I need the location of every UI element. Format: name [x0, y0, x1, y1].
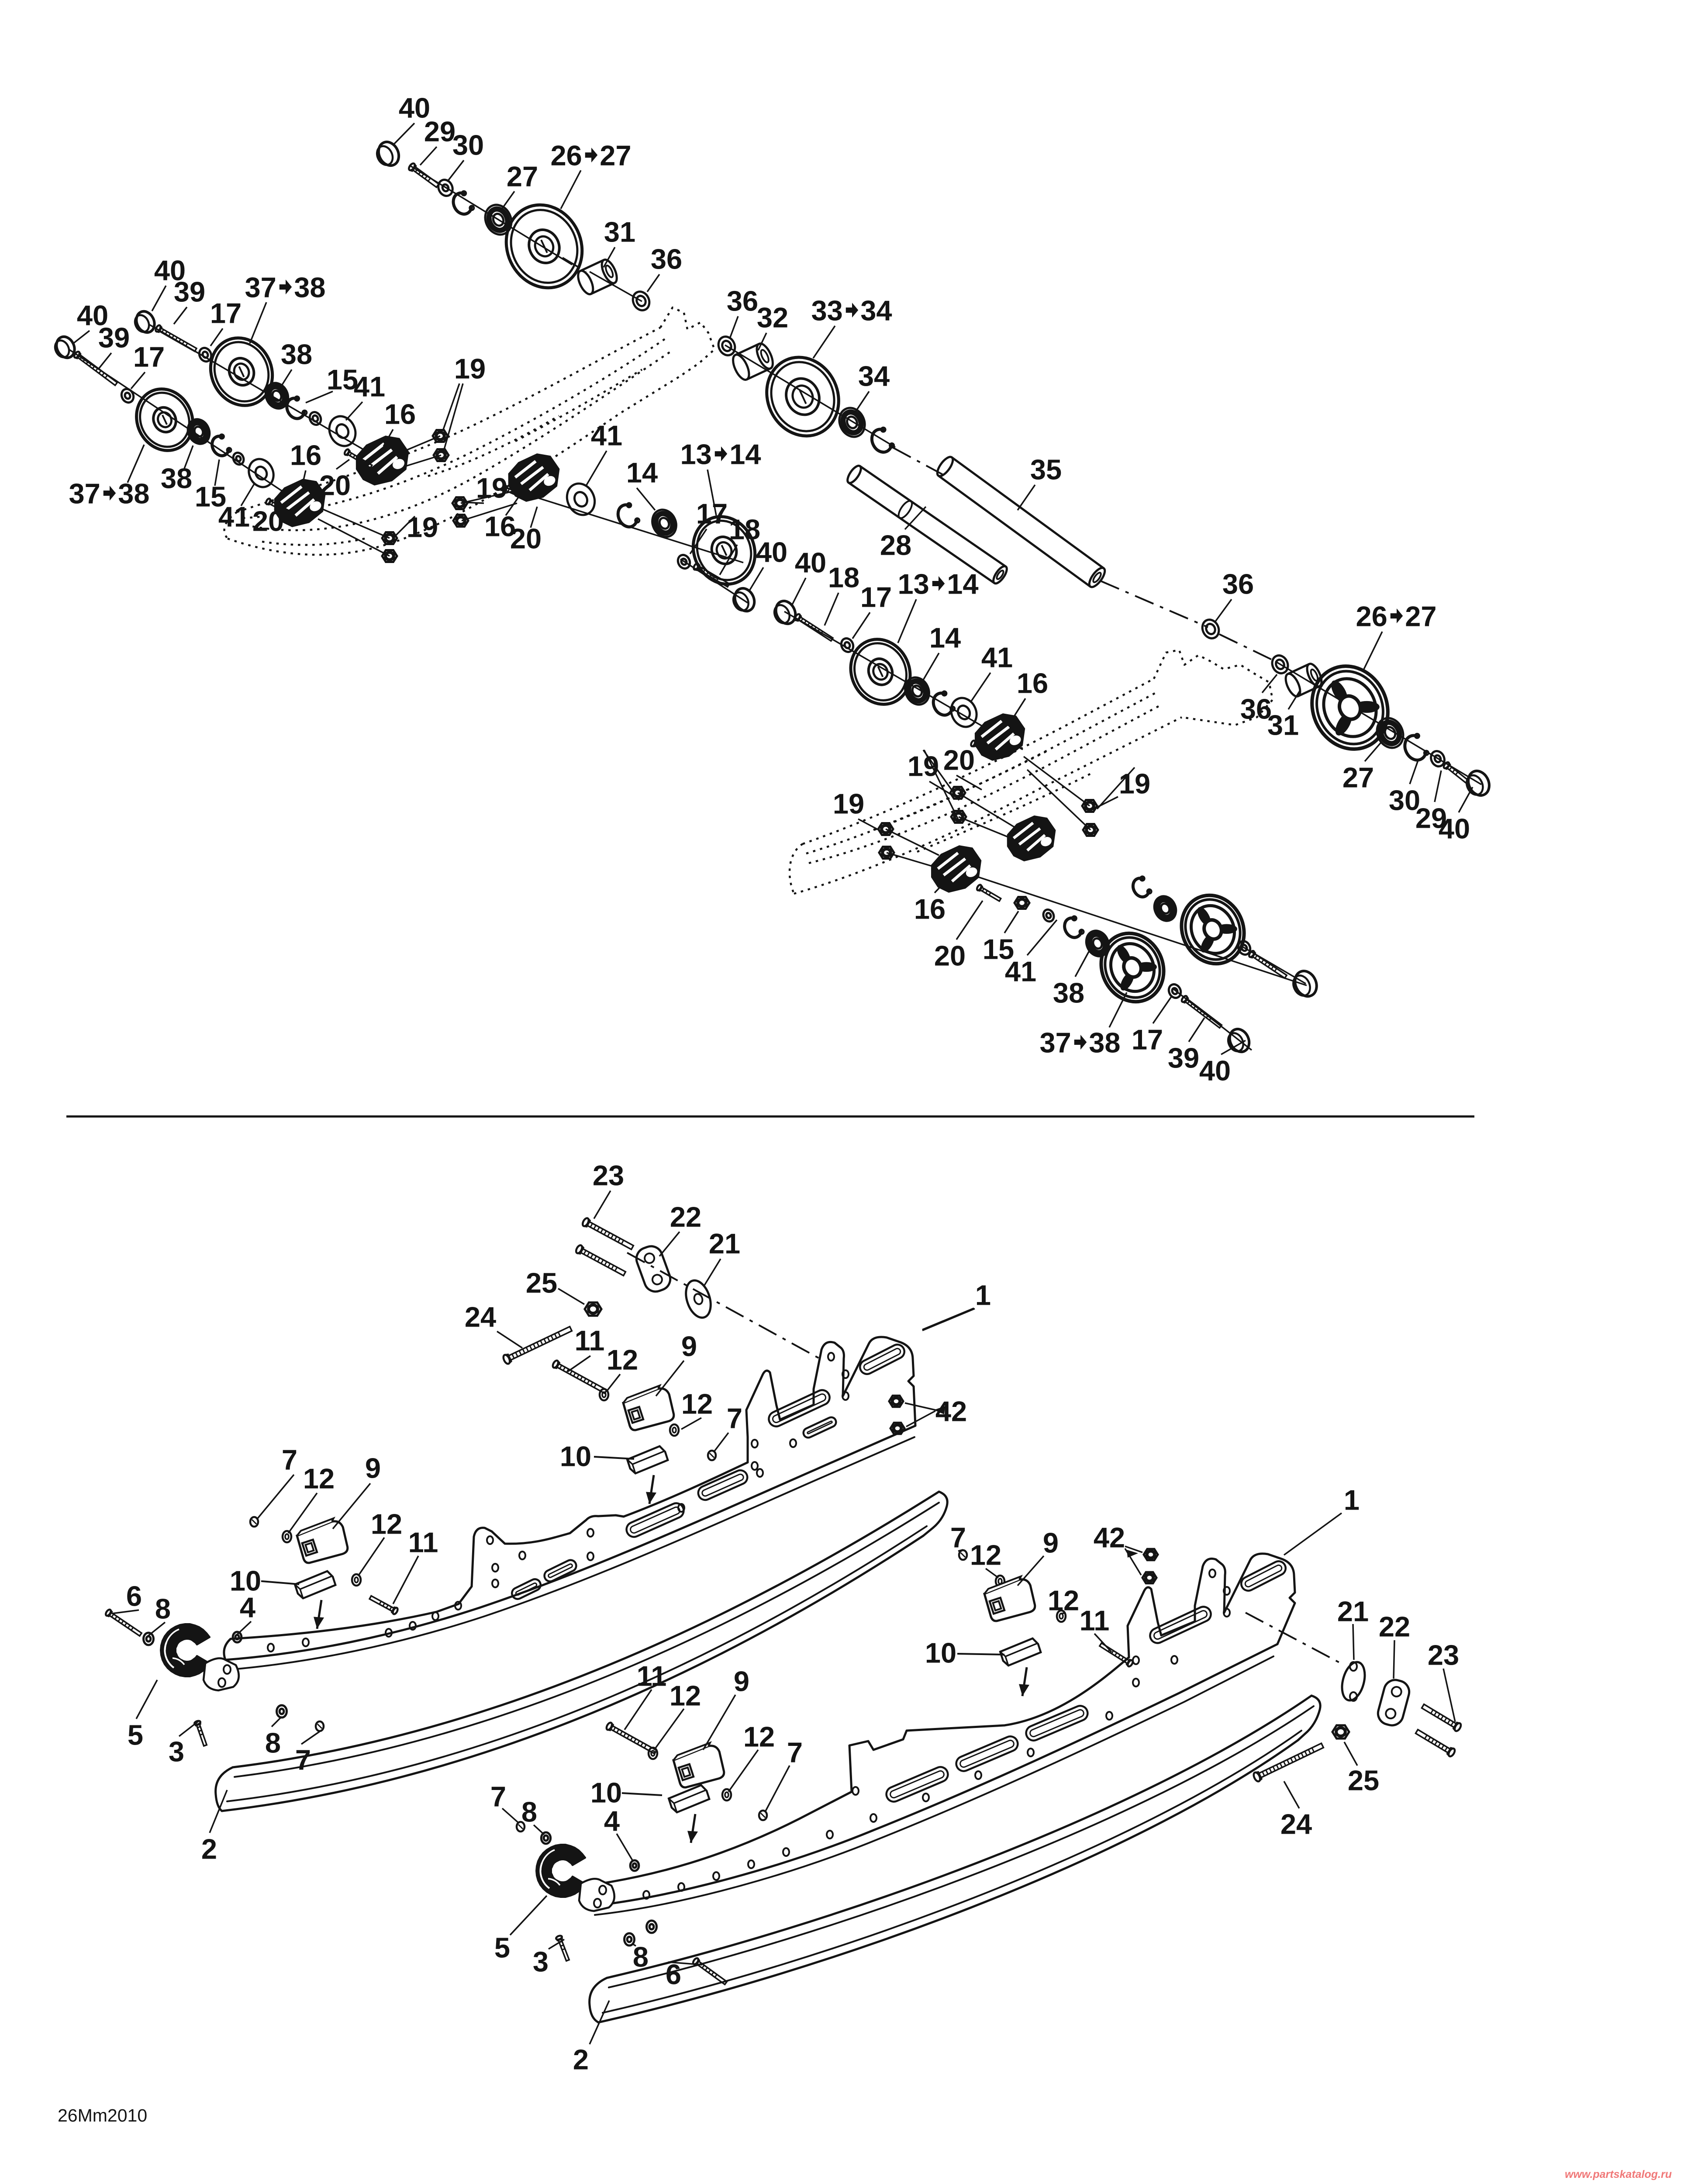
- svg-text:38: 38: [1089, 1026, 1120, 1058]
- svg-text:39: 39: [1168, 1042, 1199, 1074]
- svg-text:35: 35: [1030, 453, 1062, 485]
- svg-text:16: 16: [290, 439, 321, 471]
- svg-text:41: 41: [354, 370, 385, 402]
- svg-text:26: 26: [550, 139, 582, 171]
- svg-text:25: 25: [1348, 1764, 1379, 1796]
- svg-text:9: 9: [681, 1330, 697, 1362]
- svg-text:12: 12: [607, 1344, 638, 1375]
- svg-text:39: 39: [174, 276, 205, 308]
- svg-text:28: 28: [880, 529, 911, 561]
- svg-text:14: 14: [947, 568, 978, 600]
- svg-text:40: 40: [756, 536, 787, 568]
- svg-text:29: 29: [424, 115, 456, 147]
- svg-text:20: 20: [943, 744, 975, 776]
- svg-text:32: 32: [757, 301, 788, 333]
- svg-text:31: 31: [604, 216, 635, 248]
- svg-text:16: 16: [914, 893, 946, 925]
- svg-text:17: 17: [210, 297, 242, 329]
- svg-text:7: 7: [950, 1521, 966, 1553]
- svg-text:33: 33: [811, 294, 842, 326]
- svg-text:11: 11: [637, 1660, 667, 1692]
- svg-text:19: 19: [407, 511, 438, 543]
- svg-text:20: 20: [510, 522, 542, 554]
- svg-text:11: 11: [1080, 1604, 1110, 1636]
- svg-text:36: 36: [1222, 568, 1254, 600]
- svg-text:13: 13: [897, 568, 929, 600]
- svg-text:17: 17: [696, 498, 728, 529]
- svg-text:12: 12: [303, 1462, 335, 1494]
- svg-text:42: 42: [1094, 1521, 1125, 1553]
- svg-text:21: 21: [1337, 1595, 1369, 1627]
- svg-text:2: 2: [201, 1833, 217, 1865]
- svg-text:12: 12: [371, 1508, 402, 1540]
- svg-text:40: 40: [795, 546, 826, 578]
- svg-text:17: 17: [133, 341, 165, 373]
- svg-text:11: 11: [575, 1324, 605, 1356]
- svg-text:31: 31: [1267, 709, 1299, 741]
- svg-text:36: 36: [651, 243, 682, 275]
- svg-text:41: 41: [591, 419, 622, 451]
- svg-text:27: 27: [600, 139, 631, 171]
- svg-text:26: 26: [1356, 600, 1387, 632]
- svg-text:2: 2: [573, 2043, 589, 2075]
- svg-text:38: 38: [294, 271, 325, 303]
- svg-text:37: 37: [245, 271, 276, 303]
- svg-text:17: 17: [860, 581, 892, 613]
- svg-text:22: 22: [1379, 1610, 1410, 1642]
- svg-text:14: 14: [929, 622, 961, 653]
- svg-text:41: 41: [981, 641, 1013, 673]
- svg-text:17: 17: [1132, 1023, 1163, 1055]
- svg-text:13: 13: [680, 438, 711, 470]
- svg-text:7: 7: [787, 1736, 803, 1768]
- svg-text:9: 9: [734, 1665, 749, 1697]
- svg-text:38: 38: [1053, 977, 1084, 1009]
- svg-text:24: 24: [465, 1301, 496, 1333]
- svg-text:5: 5: [128, 1719, 143, 1751]
- svg-text:19: 19: [454, 352, 486, 384]
- svg-text:27: 27: [507, 160, 538, 192]
- svg-text:41: 41: [218, 501, 250, 532]
- svg-text:12: 12: [743, 1721, 775, 1752]
- svg-text:6: 6: [126, 1580, 142, 1612]
- svg-text:8: 8: [521, 1796, 537, 1828]
- svg-text:4: 4: [240, 1591, 255, 1623]
- svg-text:34: 34: [860, 294, 892, 326]
- svg-text:34: 34: [858, 360, 890, 392]
- svg-text:19: 19: [833, 788, 864, 819]
- svg-text:19: 19: [476, 472, 507, 504]
- svg-text:27: 27: [1405, 600, 1436, 632]
- svg-text:42: 42: [935, 1395, 967, 1427]
- svg-text:1: 1: [1344, 1484, 1360, 1516]
- svg-text:12: 12: [1048, 1584, 1079, 1616]
- svg-text:25: 25: [526, 1267, 557, 1299]
- svg-text:39: 39: [98, 321, 130, 353]
- svg-text:24: 24: [1280, 1808, 1312, 1840]
- svg-text:30: 30: [452, 129, 484, 161]
- svg-text:20: 20: [934, 940, 966, 971]
- svg-text:10: 10: [925, 1637, 956, 1669]
- svg-text:12: 12: [970, 1539, 1001, 1571]
- svg-text:18: 18: [828, 561, 859, 593]
- svg-text:10: 10: [560, 1440, 591, 1472]
- svg-text:37: 37: [69, 477, 100, 509]
- svg-text:7: 7: [490, 1780, 506, 1812]
- svg-text:40: 40: [1199, 1054, 1231, 1086]
- svg-text:22: 22: [670, 1201, 701, 1233]
- svg-text:27: 27: [1342, 761, 1374, 793]
- svg-text:38: 38: [118, 477, 149, 509]
- svg-text:38: 38: [161, 462, 192, 494]
- svg-text:10: 10: [590, 1776, 622, 1808]
- svg-text:23: 23: [1428, 1639, 1459, 1671]
- svg-text:14: 14: [626, 456, 658, 488]
- svg-text:11: 11: [408, 1526, 438, 1558]
- svg-text:23: 23: [593, 1159, 624, 1191]
- svg-text:3: 3: [533, 1946, 549, 1977]
- svg-text:8: 8: [265, 1727, 281, 1759]
- svg-text:21: 21: [709, 1227, 740, 1259]
- svg-text:7: 7: [295, 1744, 311, 1776]
- svg-text:14: 14: [729, 438, 761, 470]
- svg-text:12: 12: [669, 1679, 701, 1711]
- svg-text:5: 5: [494, 1932, 510, 1963]
- svg-text:20: 20: [319, 469, 351, 501]
- svg-text:41: 41: [1005, 955, 1036, 987]
- svg-text:8: 8: [155, 1593, 171, 1624]
- svg-text:38: 38: [281, 338, 312, 370]
- svg-text:7: 7: [727, 1402, 742, 1434]
- svg-text:1: 1: [975, 1279, 991, 1311]
- svg-text:19: 19: [1119, 767, 1150, 799]
- svg-text:20: 20: [252, 505, 284, 537]
- svg-text:16: 16: [1017, 667, 1048, 699]
- svg-text:36: 36: [727, 285, 758, 317]
- svg-text:37: 37: [1039, 1026, 1071, 1058]
- svg-text:12: 12: [681, 1388, 713, 1420]
- svg-text:4: 4: [604, 1805, 620, 1837]
- svg-text:9: 9: [365, 1452, 381, 1484]
- svg-text:www.partskatalog.ru: www.partskatalog.ru: [1565, 2168, 1672, 2181]
- svg-text:40: 40: [1439, 812, 1470, 844]
- svg-text:7: 7: [282, 1444, 297, 1476]
- svg-text:16: 16: [384, 398, 416, 430]
- svg-text:26Mm2010: 26Mm2010: [58, 2105, 147, 2125]
- svg-text:3: 3: [169, 1735, 184, 1767]
- svg-text:9: 9: [1043, 1527, 1059, 1559]
